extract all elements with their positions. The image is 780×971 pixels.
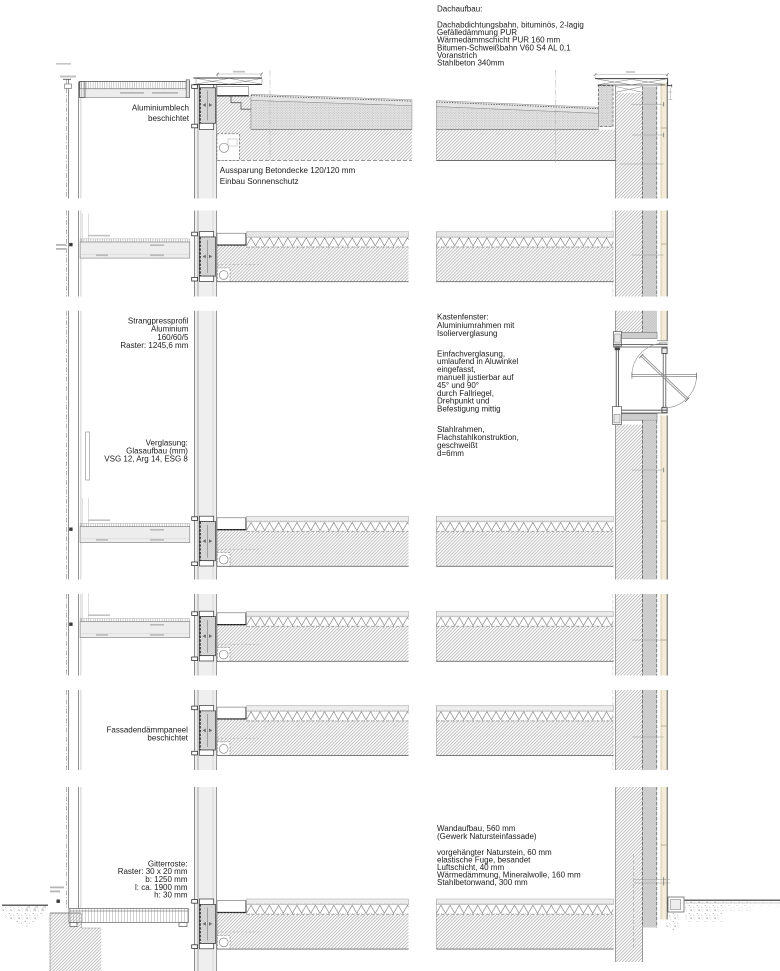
svg-text:Aluminiumblech: Aluminiumblech <box>132 104 189 113</box>
svg-text:Stahlbeton 340mm: Stahlbeton 340mm <box>437 59 504 68</box>
svg-text:h: 30 mm: h: 30 mm <box>154 891 188 900</box>
svg-text:Befestigung mittig: Befestigung mittig <box>437 405 501 414</box>
svg-text:Einbau Sonnenschutz: Einbau Sonnenschutz <box>220 177 299 186</box>
svg-text:VSG 12, Arg 14, ESG 8: VSG 12, Arg 14, ESG 8 <box>104 455 188 464</box>
svg-text:Stahlbetonwand, 300 mm: Stahlbetonwand, 300 mm <box>437 878 528 887</box>
svg-text:Raster: 1245,6 mm: Raster: 1245,6 mm <box>120 341 188 350</box>
svg-text:Dachaufbau:: Dachaufbau: <box>437 5 482 14</box>
svg-text:(Gewerk Natursteinfassade): (Gewerk Natursteinfassade) <box>437 832 537 841</box>
svg-text:Isolierverglasung: Isolierverglasung <box>437 329 497 338</box>
svg-text:d=6mm: d=6mm <box>437 449 464 458</box>
svg-text:beschichtet: beschichtet <box>147 734 188 743</box>
svg-text:beschichtet: beschichtet <box>148 114 190 123</box>
svg-text:Aussparung Betondecke 120/120: Aussparung Betondecke 120/120 mm <box>220 166 356 175</box>
